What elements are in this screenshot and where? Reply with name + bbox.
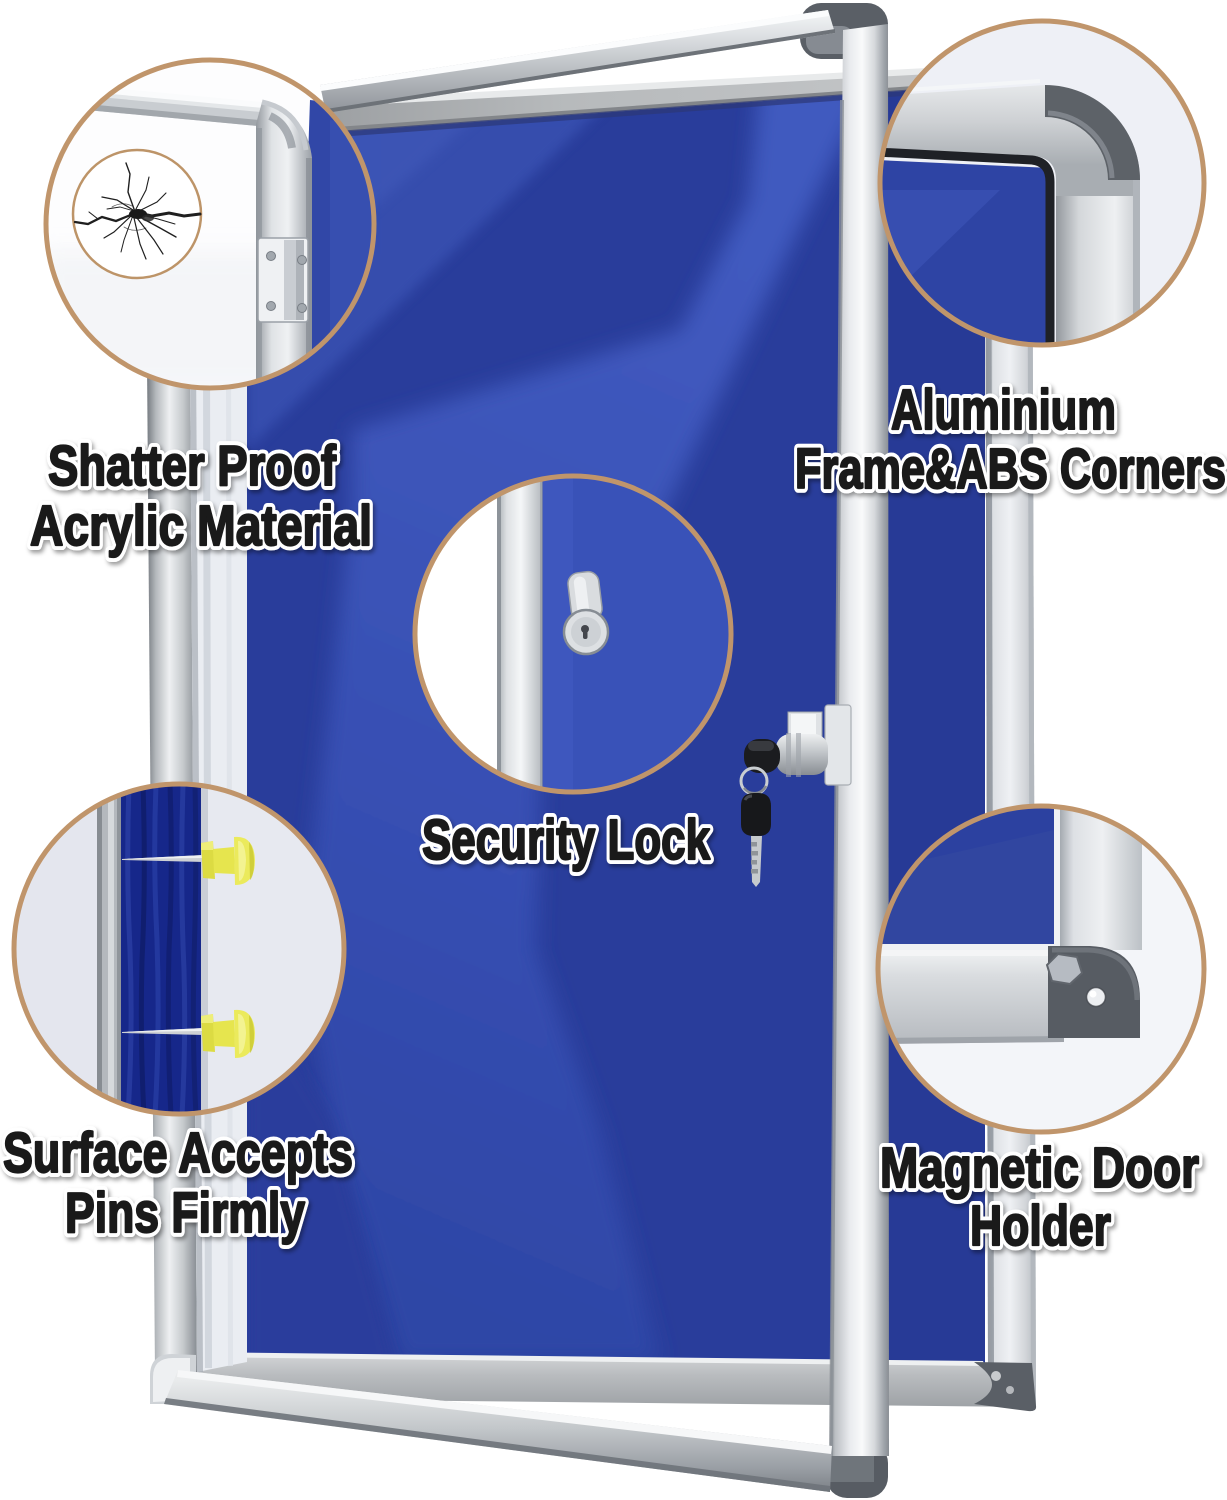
svg-text:Security Lock: Security Lock bbox=[422, 808, 710, 872]
svg-text:Frame&ABS Corners: Frame&ABS Corners bbox=[795, 437, 1226, 501]
svg-text:Magnetic Door: Magnetic Door bbox=[880, 1136, 1199, 1200]
svg-text:Shatter Proof: Shatter Proof bbox=[48, 434, 337, 498]
svg-text:Pins Firmly: Pins Firmly bbox=[65, 1181, 305, 1245]
svg-text:Surface Accepts: Surface Accepts bbox=[3, 1121, 353, 1185]
svg-text:Holder: Holder bbox=[970, 1194, 1111, 1258]
svg-text:Aluminium: Aluminium bbox=[891, 378, 1116, 442]
svg-text:Acrylic Material: Acrylic Material bbox=[30, 494, 372, 558]
